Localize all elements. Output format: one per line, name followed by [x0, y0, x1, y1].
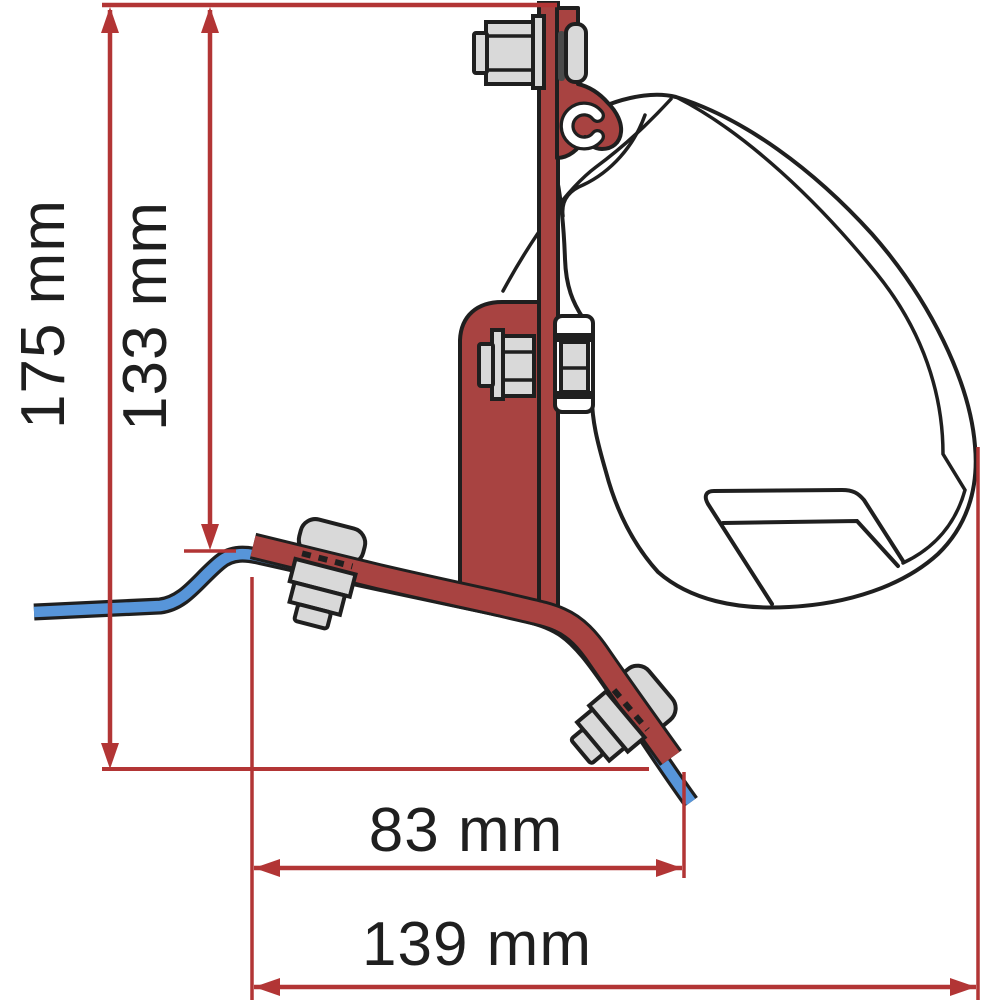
roof-line-blue: [34, 554, 691, 802]
vehicle-roof-line: [34, 554, 691, 802]
dimension-133: [201, 7, 219, 550]
arrow-left-83: [254, 859, 280, 877]
diagram-canvas: 175 mm 133 mm 83 mm 139 mm: [0, 0, 1000, 1000]
arrow-up-175: [101, 7, 119, 33]
top-bolt-cap: [474, 33, 487, 73]
arrow-left-139: [254, 978, 280, 996]
label-inner-width: 83 mm: [369, 796, 563, 865]
middle-bolt-nut: [503, 336, 534, 396]
arrow-up-133: [201, 7, 219, 33]
top-bolt-nut: [486, 22, 533, 84]
top-bolt-rail-nut: [566, 24, 586, 82]
arrow-right-83: [656, 859, 682, 877]
awning-bracket-diagram: 175 mm 133 mm 83 mm 139 mm: [0, 0, 1000, 1000]
top-bolt: [474, 16, 586, 88]
hook-slot: [558, 31, 565, 81]
clamp-bolt-1-stack: [280, 559, 355, 633]
dimension-139: [254, 978, 976, 996]
label-total-height: 175 mm: [9, 199, 78, 429]
label-total-width: 139 mm: [362, 910, 592, 979]
label-bracket-height: 133 mm: [111, 201, 180, 431]
middle-bolt-cap: [479, 344, 493, 386]
awning-body-outline: [556, 95, 975, 608]
arrow-down-175: [101, 743, 119, 769]
arrow-down-133: [201, 524, 219, 550]
roof-line-outline: [34, 554, 691, 802]
arrow-right-139: [950, 978, 976, 996]
